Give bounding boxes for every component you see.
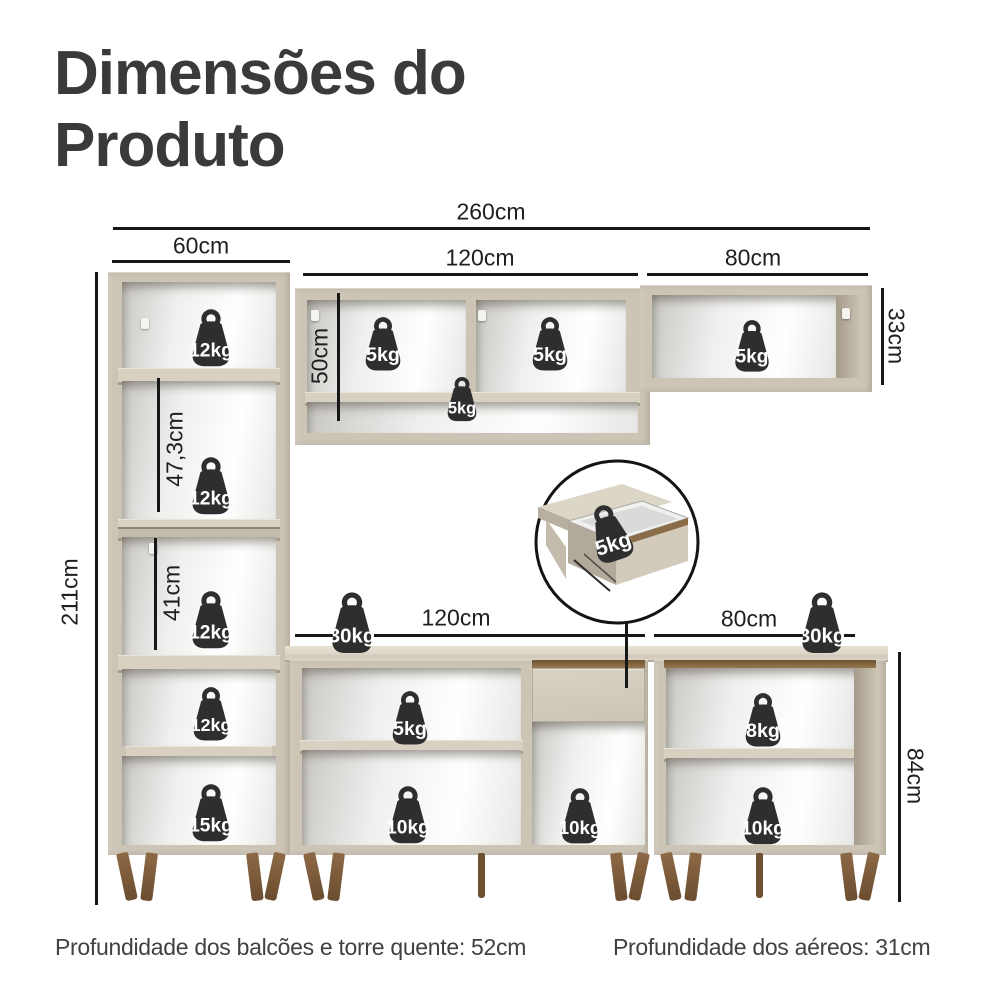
inset-connector-line	[625, 620, 628, 688]
weight-label: 10kg	[741, 818, 785, 839]
leg	[684, 852, 702, 901]
dim-tower-upper-section-line	[157, 378, 160, 512]
depth-note-uppers: Profundidade dos aéreos: 31cm	[613, 934, 930, 961]
dim-upper-middle-width-line	[303, 273, 638, 276]
dim-upper-middle-height-line	[337, 293, 340, 421]
weight-label: 5kg	[736, 347, 769, 368]
drawer-front	[532, 668, 645, 722]
product-dimensions-infographic: Dimensões do Produto	[0, 0, 1000, 1000]
dim-total-width-line	[113, 227, 870, 230]
weight-label: 5kg	[533, 344, 567, 366]
dim-upper-middle-width-label: 120cm	[445, 245, 514, 272]
weight-badge: 5kg	[521, 316, 579, 374]
hinge	[478, 310, 486, 321]
hinge	[141, 318, 149, 329]
weight-badge: 5kg	[354, 316, 412, 374]
leg	[858, 852, 880, 901]
leg	[756, 853, 763, 898]
weight-badge: 30kg	[789, 591, 855, 657]
dim-upper-right-width-label: 80cm	[725, 245, 781, 272]
hinge	[311, 310, 319, 321]
weight-badge: 5kg	[438, 376, 486, 424]
hinge	[842, 308, 850, 319]
leg	[140, 852, 158, 901]
leg	[628, 852, 650, 901]
leg	[327, 852, 345, 901]
depth-note-counters: Profundidade dos balcões e torre quente:…	[55, 934, 526, 961]
leg	[246, 852, 264, 901]
weight-badge: 12kg	[180, 456, 242, 518]
weight-label: 5kg	[448, 399, 476, 417]
dim-total-height-label: 211cm	[57, 558, 84, 625]
dim-counter-right-width-label: 80cm	[721, 606, 777, 633]
weight-badge: 12kg	[182, 686, 240, 744]
leg	[610, 852, 628, 901]
weight-label: 12kg	[189, 488, 233, 509]
leg	[116, 852, 138, 901]
dim-total-width-label: 260cm	[456, 199, 525, 226]
weight-badge: 8kg	[734, 692, 792, 750]
dim-counter-middle-width-label: 120cm	[421, 605, 490, 632]
page-title: Dimensões do Produto	[54, 38, 524, 182]
weight-badge: 12kg	[180, 590, 242, 652]
weight-badge: 12kg	[180, 308, 242, 370]
weight-label: 10kg	[386, 817, 430, 838]
dim-tower-width-label: 60cm	[173, 233, 229, 260]
leg	[303, 852, 325, 901]
leg	[264, 852, 286, 901]
dim-tower-lower-section-line	[154, 538, 157, 650]
weight-label: 12kg	[191, 715, 232, 735]
weight-badge: 10kg	[377, 785, 439, 847]
leg	[660, 852, 682, 901]
weight-label: 12kg	[189, 622, 233, 643]
weight-badge: 5kg	[381, 690, 439, 748]
drawer-handle-groove	[532, 660, 645, 668]
dim-total-height-line	[95, 272, 98, 905]
weight-label: 15kg	[189, 815, 233, 836]
dim-upper-middle-height-label: 50cm	[307, 328, 334, 384]
leg	[840, 852, 858, 901]
weight-badge: 30kg	[319, 591, 385, 657]
weight-label: 30kg	[799, 624, 846, 647]
weight-badge: 10kg	[550, 787, 610, 847]
right-handle-groove	[664, 660, 876, 668]
weight-label: 8kg	[746, 720, 780, 742]
weight-label: 10kg	[559, 817, 601, 838]
weight-label: 5kg	[366, 344, 400, 366]
dim-counter-height-label: 84cm	[902, 748, 929, 804]
weight-label: 5kg	[393, 718, 427, 740]
weight-label: 30kg	[329, 624, 376, 647]
lower-right-side-panel	[854, 668, 876, 845]
dim-upper-right-width-line	[647, 273, 868, 276]
weight-label: 12kg	[189, 340, 233, 361]
leg	[478, 853, 485, 898]
dim-upper-right-height-label: 33cm	[883, 308, 910, 364]
weight-badge: 15kg	[180, 783, 242, 845]
weight-badge: 5kg	[724, 319, 780, 375]
dim-tower-width-line	[112, 260, 290, 263]
weight-badge: 10kg	[732, 786, 794, 848]
